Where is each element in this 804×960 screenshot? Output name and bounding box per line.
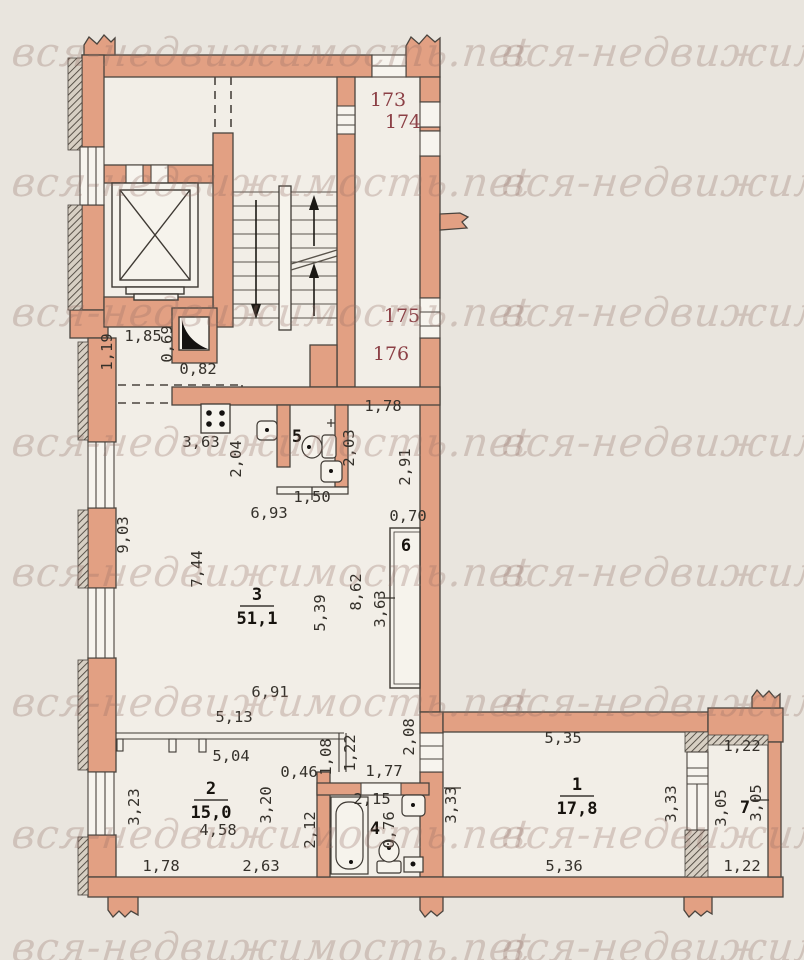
wall-break-stub	[406, 35, 440, 77]
elevator-icon	[112, 183, 198, 300]
dimension-label: 0,69	[158, 325, 176, 362]
washer-icon	[404, 857, 423, 872]
window-icon	[372, 55, 406, 77]
dimension-label: 1,22	[723, 737, 760, 755]
dimension-label: 1,85	[124, 327, 161, 345]
room-area-label: 17,8	[557, 799, 598, 819]
door-opening	[420, 298, 440, 338]
dimension-label: 1,08	[317, 738, 335, 775]
dimension-label: 1,77	[365, 762, 402, 780]
dimension-label: 5,04	[212, 747, 249, 765]
window-icon	[88, 772, 114, 835]
dimension-label: 2,08	[400, 718, 418, 755]
floor-plan-page: 1,191,850,690,823,632,042,031,782,911,50…	[0, 0, 804, 960]
dimension-label: 3,63	[371, 590, 389, 627]
wall-break-stub	[108, 897, 138, 917]
dimension-label: 2,12	[301, 811, 319, 848]
dimension-label: 3,33	[442, 786, 460, 823]
window-icon	[88, 442, 114, 508]
room-area-label: 51,1	[237, 609, 278, 629]
window-icon	[80, 147, 104, 205]
dimension-label: 2,63	[242, 857, 279, 875]
apartment-number-label: 175	[384, 305, 420, 327]
dimension-label: 5,39	[311, 594, 329, 631]
garbage-chute-icon	[179, 317, 209, 350]
sink-icon	[257, 421, 277, 440]
dimension-label: 3,63	[182, 433, 219, 451]
apartment-number-label: 176	[373, 343, 409, 365]
dimension-label: 9,03	[114, 516, 132, 553]
stove-icon	[201, 404, 230, 433]
apartment-number-label: 173	[370, 89, 406, 111]
window-icon	[88, 588, 114, 658]
apartment-number-label: 174	[385, 111, 421, 133]
dimension-label: 1,19	[98, 333, 116, 370]
wall-break-stub	[440, 213, 468, 230]
dimension-label: 6,93	[250, 504, 287, 522]
dimension-label: 1,22	[341, 734, 359, 771]
dimension-label: 0,46	[280, 763, 317, 781]
door-opening	[420, 733, 443, 772]
floor-plan-drawing: 1,191,850,690,823,632,042,031,782,911,50…	[0, 0, 804, 960]
dimension-label: 2,03	[340, 429, 358, 466]
dimension-label: 1,78	[364, 397, 401, 415]
dimension-label: 3,20	[257, 786, 275, 823]
sink-icon	[402, 795, 425, 816]
sink-icon	[321, 461, 342, 482]
dimension-label: 0,70	[389, 507, 426, 525]
dimension-label: 2,15	[353, 790, 390, 808]
room-number-label: 7	[740, 798, 750, 818]
dimension-label: 8,62	[347, 573, 365, 610]
dimension-label: 4,58	[199, 821, 236, 839]
dimension-label: 5,36	[545, 857, 582, 875]
room-number-label: 6	[401, 536, 411, 556]
wall-break-stub	[752, 690, 780, 708]
dimension-label: 2,04	[227, 440, 245, 477]
dimension-label: 5,35	[544, 729, 581, 747]
room-area-label: 15,0	[191, 803, 232, 823]
dimension-label: 3,23	[125, 788, 143, 825]
dimension-label: 5,13	[215, 708, 252, 726]
room-number-label: 1	[572, 775, 582, 795]
room-number-label: 2	[206, 779, 216, 799]
dimension-label: 3,05	[712, 789, 730, 826]
dimension-label: 0,82	[179, 360, 216, 378]
wall-break-stub	[684, 897, 712, 917]
dimension-label: 1,22	[723, 857, 760, 875]
door-opening	[337, 106, 355, 134]
dimension-label: 1,78	[142, 857, 179, 875]
balcony-window-icon	[687, 752, 708, 830]
dimension-label: 0,76	[380, 811, 398, 848]
dimension-label: 7,44	[188, 550, 206, 587]
dimension-label: 3,33	[662, 785, 680, 822]
room-number-label: 5	[292, 427, 302, 447]
dimension-label: 6,91	[251, 683, 288, 701]
room-number-label: 4	[370, 819, 380, 839]
wall-break-stub	[420, 897, 443, 917]
room-number-label: 3	[252, 585, 262, 605]
dimension-label: 2,91	[396, 448, 414, 485]
bathtub-icon	[331, 797, 368, 874]
wall-break-stub	[84, 35, 115, 55]
